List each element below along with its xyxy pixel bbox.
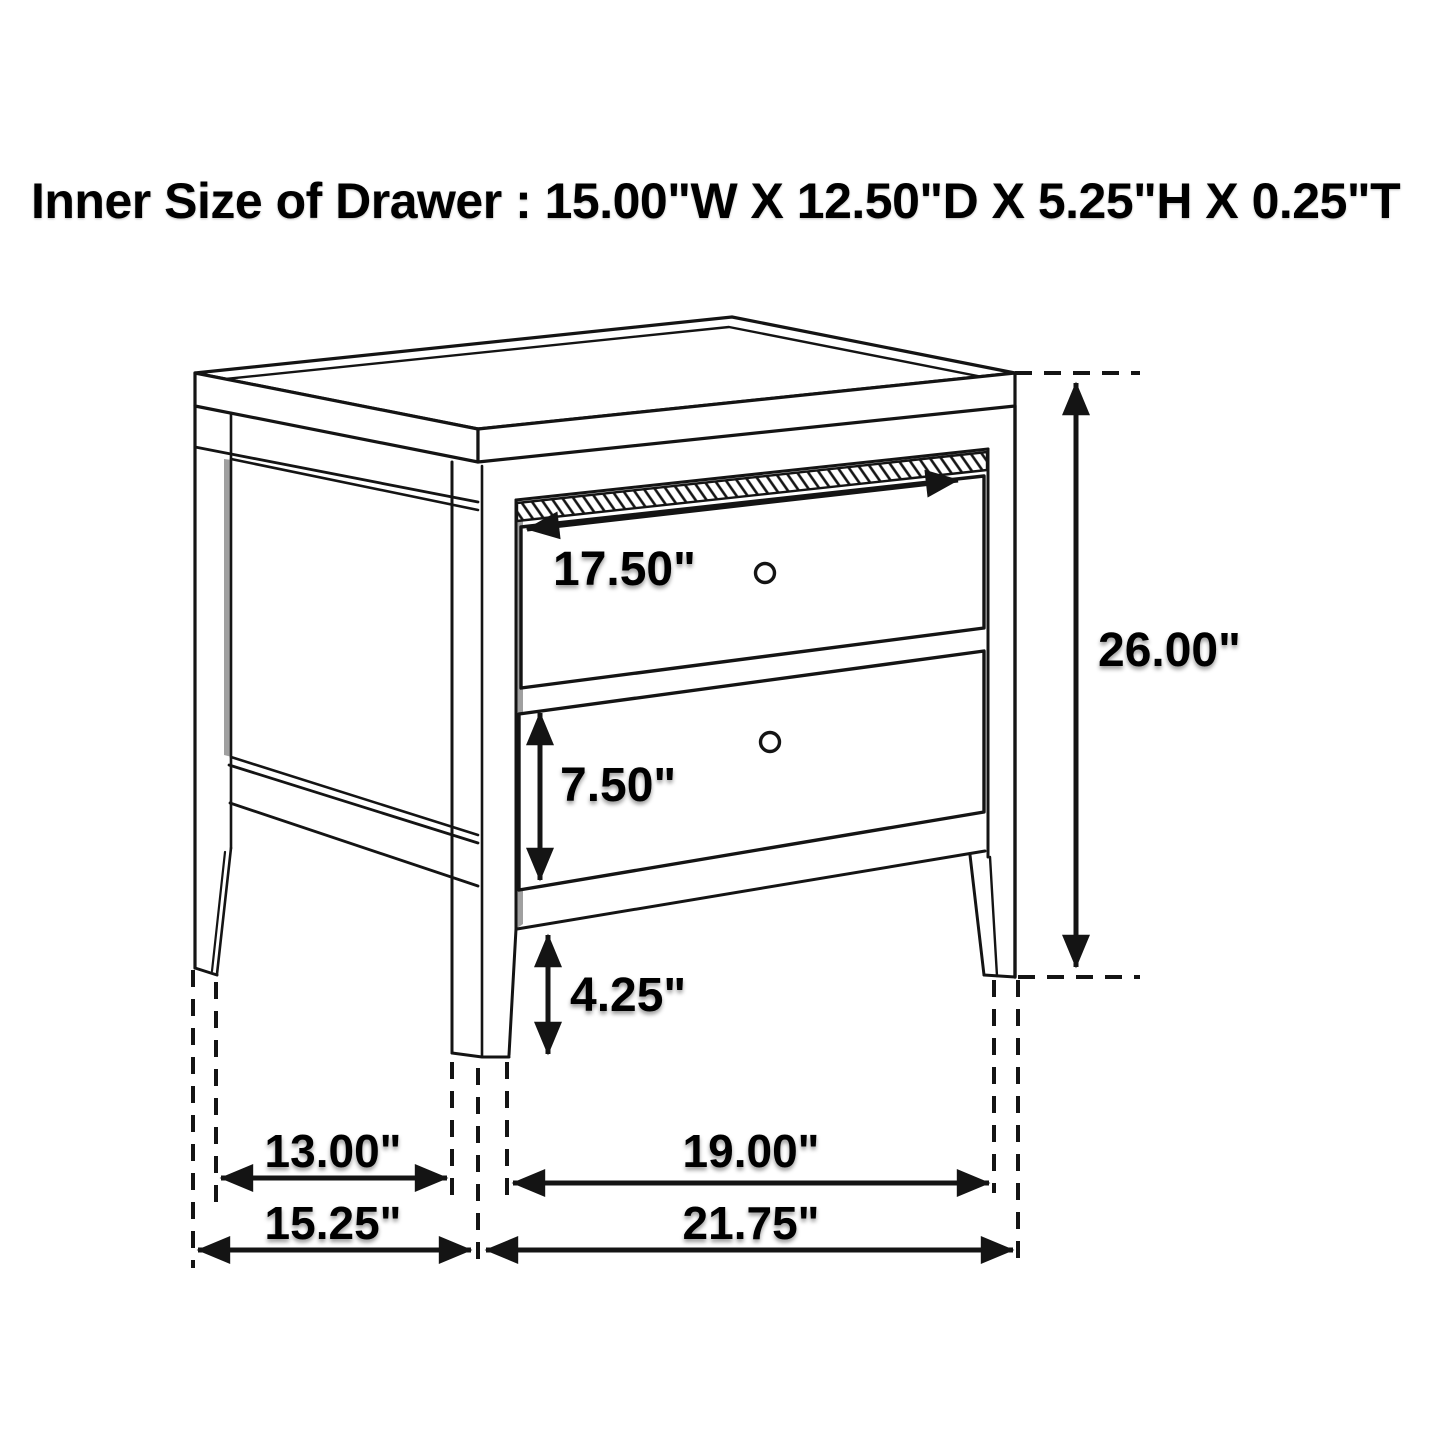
dimension-diagram-page: Inner Size of Drawer : 15.00"W X 12.50"D…: [0, 0, 1445, 1445]
drawer-knob-icon: [761, 733, 780, 752]
dim-label-side-overall: 15.25": [265, 1200, 402, 1246]
back-left-leg: [195, 848, 231, 975]
dim-label-side-inner: 13.00": [265, 1128, 402, 1174]
dim-label-front-inner: 19.00": [683, 1128, 820, 1174]
front-left-leg: [452, 462, 516, 1057]
dim-label-overall-height: 26.00": [1098, 627, 1241, 675]
left-side-panel: [195, 406, 478, 975]
dim-label-drawer-width: 17.50": [553, 546, 696, 594]
drawer-knob-icon: [756, 564, 775, 583]
page-title: Inner Size of Drawer : 15.00"W X 12.50"D…: [31, 172, 1400, 230]
dim-label-drawer-height: 7.50": [560, 762, 676, 810]
dim-label-leg-height: 4.25": [570, 972, 686, 1020]
tabletop: [195, 317, 1015, 462]
front-right-leg: [970, 855, 1015, 977]
dim-label-front-overall: 21.75": [683, 1200, 820, 1246]
